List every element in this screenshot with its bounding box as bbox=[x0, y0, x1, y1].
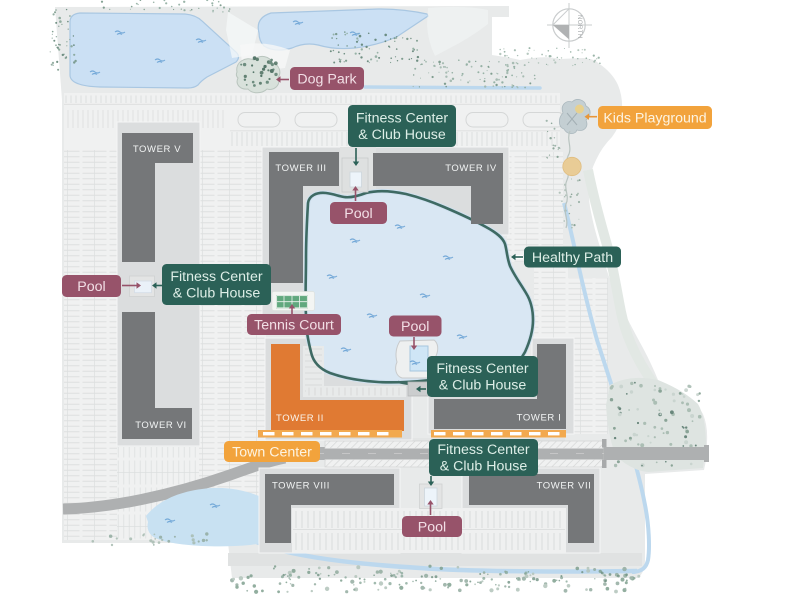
svg-text:& Club House: & Club House bbox=[358, 127, 446, 143]
svg-text:Pool: Pool bbox=[401, 319, 429, 335]
svg-text:Kids Playground: Kids Playground bbox=[603, 110, 706, 126]
svg-text:TOWER V: TOWER V bbox=[133, 144, 181, 155]
svg-text:TOWER VI: TOWER VI bbox=[135, 420, 187, 431]
svg-text:Fitness Center: Fitness Center bbox=[436, 361, 529, 377]
svg-text:Fitness Center: Fitness Center bbox=[356, 111, 449, 127]
svg-text:& Club House: & Club House bbox=[173, 286, 261, 302]
svg-text:Pool: Pool bbox=[344, 206, 372, 222]
svg-text:NORTH: NORTH bbox=[576, 15, 582, 39]
svg-text:Tennis Court: Tennis Court bbox=[254, 317, 334, 333]
svg-text:Pool: Pool bbox=[418, 519, 446, 535]
svg-text:TOWER II: TOWER II bbox=[276, 413, 324, 424]
svg-text:& Club House: & Club House bbox=[440, 459, 528, 475]
svg-text:Pool: Pool bbox=[77, 279, 105, 295]
svg-text:TOWER I: TOWER I bbox=[517, 413, 562, 424]
svg-text:TOWER III: TOWER III bbox=[275, 163, 326, 174]
svg-text:Fitness Center: Fitness Center bbox=[437, 442, 530, 458]
svg-text:Town Center: Town Center bbox=[232, 444, 312, 460]
svg-text:TOWER VII: TOWER VII bbox=[537, 481, 592, 492]
svg-text:Healthy Path: Healthy Path bbox=[532, 250, 613, 266]
svg-text:TOWER IV: TOWER IV bbox=[445, 163, 497, 174]
svg-text:Fitness Center: Fitness Center bbox=[170, 269, 263, 285]
svg-text:& Club House: & Club House bbox=[439, 378, 527, 394]
svg-text:TOWER VIII: TOWER VIII bbox=[272, 481, 330, 492]
svg-text:Dog Park: Dog Park bbox=[297, 71, 357, 87]
